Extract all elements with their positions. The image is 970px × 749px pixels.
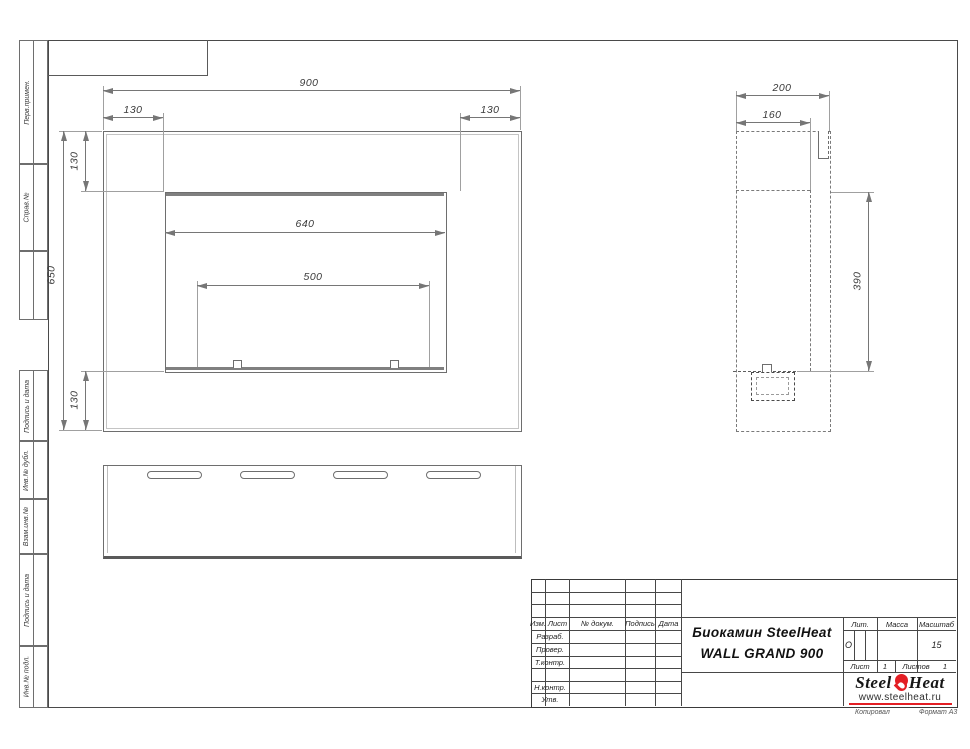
doc-title-line1: Биокамин SteelHeat (681, 625, 843, 640)
title-block-line (531, 617, 956, 618)
extension-line (520, 86, 521, 130)
title-block-line (895, 660, 896, 672)
margin-label: Подпись и дата (24, 574, 31, 627)
lit-value: О (843, 640, 854, 650)
logo-text-heat: Heat (909, 673, 945, 693)
dim-130-right-label: 130 (460, 104, 520, 116)
extension-line (810, 118, 811, 190)
margin-cell-sprav: Справ.№ (19, 163, 48, 252)
kopiroval-label: Копировал (855, 709, 890, 716)
dim-arrow (419, 283, 429, 289)
dim-arrow (103, 88, 113, 94)
dim-640-label: 640 (275, 218, 335, 230)
col-list: Лист (546, 619, 569, 628)
dim-390-label: 390 (852, 271, 864, 290)
dim-200 (736, 95, 829, 96)
margin-label: Справ.№ (24, 193, 31, 223)
burner-slot (240, 471, 295, 479)
title-block-line (865, 630, 866, 660)
extension-line (163, 113, 164, 191)
dim-130-left-label: 130 (103, 104, 163, 116)
dim-650 (63, 131, 64, 430)
row-nkontr: Н.контр. (531, 683, 569, 692)
extension-line (797, 371, 874, 372)
dim-arrow (83, 420, 89, 430)
title-block-line (843, 660, 956, 661)
margin-cell-podpis-data-1: Подпись и дата (19, 370, 48, 442)
dim-200-label: 200 (752, 82, 812, 94)
scale-value: 15 (917, 640, 956, 650)
extension-line (460, 113, 461, 191)
side-hidden-line-top (736, 190, 810, 191)
dim-650-label: 650 (46, 265, 58, 284)
dim-130-right (460, 117, 520, 118)
row-tkontr: Т.контр. (531, 658, 569, 667)
title-block-line (531, 630, 681, 631)
mass-header: Масса (877, 620, 917, 629)
dim-130-top-label: 130 (69, 151, 81, 170)
dim-500-label: 500 (283, 271, 343, 283)
title-block-line (531, 668, 681, 669)
dim-arrow (165, 230, 175, 236)
scale-header: Масштаб (917, 620, 956, 629)
margin-label: Инв.№ подл. (24, 656, 31, 698)
margin-cell-inv-dubl: Инв.№ дубл. (19, 440, 48, 500)
extension-line (81, 191, 164, 192)
side-hidden-line-vert (810, 190, 811, 371)
drawing-sheet: Перв.примен. Справ.№ Подпись и дата Инв.… (0, 0, 970, 749)
title-block-line (681, 579, 682, 706)
row-prover: Провер. (531, 645, 569, 654)
dim-640 (165, 232, 445, 233)
burner-tab-left (233, 360, 242, 368)
dim-130-bottom-label: 130 (69, 390, 81, 409)
dim-arrow (510, 88, 520, 94)
doc-title-line2: WALL GRAND 900 (681, 646, 843, 661)
extension-line (81, 371, 164, 372)
margin-label: Взам.инв.№ (24, 507, 31, 546)
side-burner-tab (762, 364, 772, 372)
dim-160 (736, 122, 810, 123)
col-date: Дата (655, 619, 682, 628)
col-doc: № докум. (570, 619, 625, 628)
logo-text-steel: Steel (855, 673, 892, 693)
dim-160-label: 160 (742, 109, 802, 121)
col-izm: Изм. (529, 619, 547, 628)
sheet-value: 1 (876, 662, 894, 671)
dim-arrow (736, 93, 746, 99)
dim-arrow (61, 131, 67, 141)
burner-slot (147, 471, 202, 479)
dim-130-left (103, 117, 163, 118)
col-sign: Подпись (624, 619, 656, 628)
margin-cell-vzam-inv: Взам.инв.№ (19, 498, 48, 555)
front-opening-top-band (166, 193, 444, 196)
logo-url: www.steelheat.ru (845, 692, 955, 703)
margin-cell-podpis-data-2: Подпись и дата (19, 553, 48, 647)
dim-130-bottom (85, 371, 86, 430)
margin-label: Перв.примен. (24, 80, 31, 125)
dim-arrow (83, 181, 89, 191)
format-label: Формат А3 (919, 709, 957, 716)
sheets-label: Листов (897, 662, 935, 671)
dim-900-label: 900 (279, 77, 339, 89)
dim-130-top (85, 131, 86, 191)
extension-line (197, 281, 198, 367)
dim-arrow (61, 420, 67, 430)
bottom-inner-line-left (107, 466, 108, 553)
flame-icon (894, 673, 909, 692)
dim-arrow (819, 93, 829, 99)
burner-tab-right (390, 360, 399, 368)
margin-label: Инв.№ дубл. (24, 449, 31, 490)
dim-900 (103, 90, 520, 91)
sheets-value: 1 (936, 662, 954, 671)
title-block-line (531, 604, 681, 605)
dim-390 (868, 192, 869, 371)
title-block-line (531, 656, 681, 657)
title-block-line (531, 592, 681, 593)
row-razrab: Разраб. (531, 632, 569, 641)
dim-500 (197, 285, 429, 286)
burner-slot (333, 471, 388, 479)
dim-arrow (83, 131, 89, 141)
bottom-inner-line-right (515, 466, 516, 553)
title-block-line (531, 693, 681, 694)
margin-cell-perv-primen: Перв.примен. (19, 40, 48, 165)
extension-line (829, 91, 830, 131)
margin-cell-inv-podl: Инв.№ подл. (19, 645, 48, 708)
top-left-stamp-box (48, 40, 208, 76)
bottom-outer-rect (103, 465, 522, 559)
row-utv: Утв. (531, 695, 569, 704)
steelheat-logo: SteelHeat (845, 674, 955, 692)
title-block-line (531, 681, 681, 682)
dim-arrow (197, 283, 207, 289)
side-top-notch (818, 131, 829, 159)
dim-arrow (435, 230, 445, 236)
sheet-label: Лист (845, 662, 875, 671)
extension-line (429, 281, 430, 367)
lit-header: Лит. (843, 620, 877, 629)
margin-label: Подпись и дата (24, 380, 31, 433)
title-block-line (843, 630, 956, 631)
front-opening-bottom-band (166, 367, 444, 370)
margin-cell-divider (33, 251, 34, 319)
title-block-line (531, 643, 681, 644)
extension-line (59, 430, 102, 431)
burner-slot (426, 471, 481, 479)
dim-arrow (866, 192, 872, 202)
side-burner-inner (756, 377, 789, 395)
logo-red-underline (849, 703, 952, 705)
title-block-line (854, 630, 855, 660)
dim-arrow (866, 361, 872, 371)
